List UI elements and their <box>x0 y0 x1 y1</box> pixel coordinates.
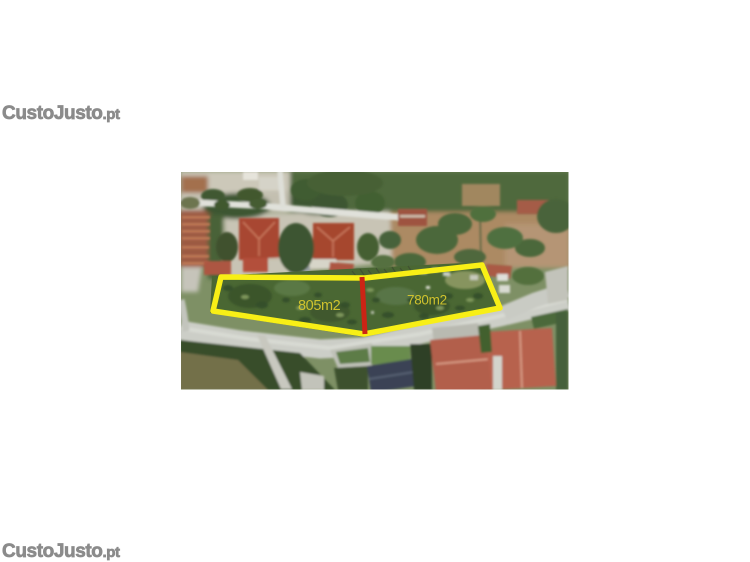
svg-text:CustoJusto.pt: CustoJusto.pt <box>2 541 120 562</box>
svg-text:CustoJusto.pt: CustoJusto.pt <box>2 103 120 124</box>
svg-text:805m2: 805m2 <box>298 298 341 314</box>
svg-text:780m2: 780m2 <box>407 293 447 308</box>
